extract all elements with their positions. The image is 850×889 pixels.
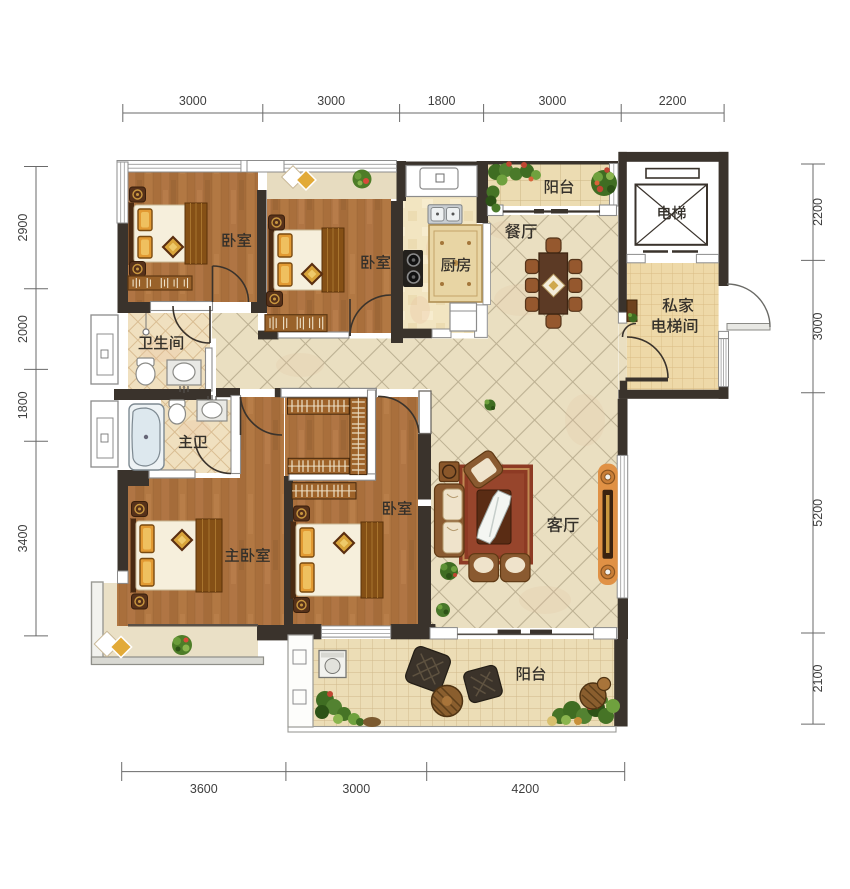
svg-text:3000: 3000 xyxy=(811,313,825,341)
svg-text:3000: 3000 xyxy=(317,94,345,108)
svg-text:1800: 1800 xyxy=(16,391,30,419)
svg-text:1800: 1800 xyxy=(428,94,456,108)
svg-text:5200: 5200 xyxy=(811,499,825,527)
svg-text:2000: 2000 xyxy=(16,315,30,343)
svg-text:2900: 2900 xyxy=(16,214,30,242)
svg-text:4200: 4200 xyxy=(511,782,539,796)
svg-text:3000: 3000 xyxy=(179,94,207,108)
svg-text:3000: 3000 xyxy=(342,782,370,796)
svg-text:3400: 3400 xyxy=(16,525,30,553)
svg-text:2100: 2100 xyxy=(811,665,825,693)
svg-text:3600: 3600 xyxy=(190,782,218,796)
svg-text:2200: 2200 xyxy=(811,198,825,226)
svg-text:3000: 3000 xyxy=(538,94,566,108)
svg-text:2200: 2200 xyxy=(659,94,687,108)
